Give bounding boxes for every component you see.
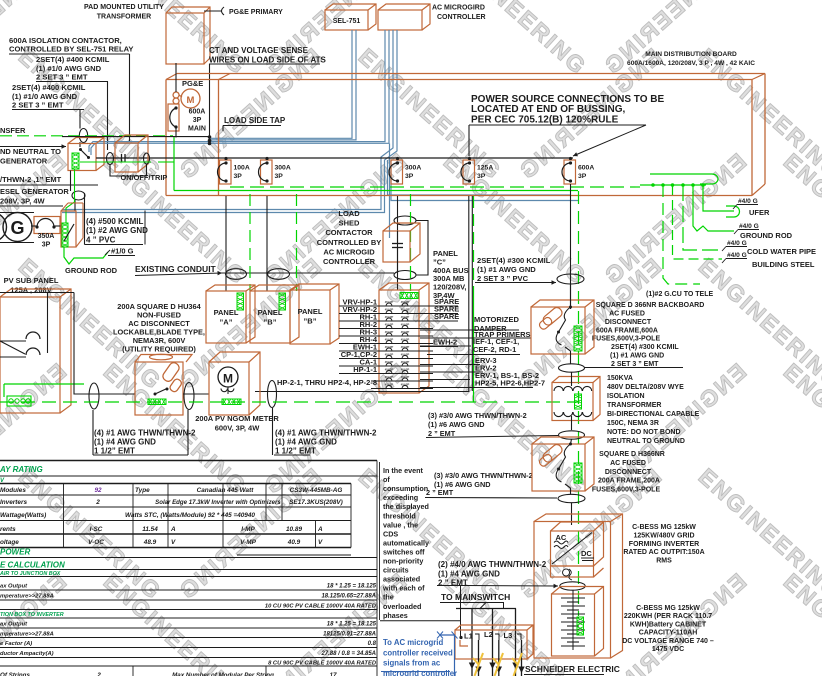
svg-text:BUILDING STEEL: BUILDING STEEL	[752, 260, 815, 269]
svg-text:600A: 600A	[578, 165, 594, 172]
svg-text:2SET(4) #400 KCMIL: 2SET(4) #400 KCMIL	[12, 83, 86, 92]
svg-text:SEL-751: SEL-751	[333, 18, 361, 25]
svg-text:CONTROLLED BY: CONTROLLED BY	[317, 238, 382, 247]
svg-text:1 1/2” EMT: 1 1/2” EMT	[275, 447, 316, 456]
svg-text:2 ” EMT: 2 ” EMT	[438, 579, 468, 588]
svg-text:MAIN DISTRIBUTION BOARD: MAIN DISTRIBUTION BOARD	[645, 51, 737, 58]
svg-text:associated: associated	[383, 575, 420, 584]
svg-text:220KWH (PER RACK 110.7: 220KWH (PER RACK 110.7	[624, 613, 712, 620]
svg-text:#4/0 G: #4/0 G	[739, 223, 759, 230]
svg-text:mperature>>27.88A: mperature>>27.88A	[0, 632, 54, 638]
svg-text:NSFER: NSFER	[0, 126, 26, 135]
svg-text:(1) #4 AWG GND: (1) #4 AWG GND	[275, 438, 337, 447]
svg-text:SE17.3KUS(208V): SE17.3KUS(208V)	[289, 499, 343, 506]
svg-text:45A2P: 45A2P	[385, 360, 394, 364]
svg-text:#1/0 G: #1/0 G	[111, 247, 134, 256]
svg-text:PANEL: PANEL	[298, 307, 323, 316]
svg-text:e Factor (A): e Factor (A)	[0, 641, 32, 647]
svg-text:FUSES,600V,3-POLE: FUSES,600V,3-POLE	[592, 336, 661, 343]
svg-text:(3) #3/0 AWG THWN/THWN-2: (3) #3/0 AWG THWN/THWN-2	[428, 411, 527, 420]
svg-text:125A , 208V: 125A , 208V	[10, 286, 51, 295]
svg-text:1475 VDC: 1475 VDC	[652, 646, 684, 653]
svg-text:Watts STC, (Watts/Module) 92: Watts STC, (Watts/Module) 92 * 445 =4094…	[125, 512, 255, 519]
svg-text:SQUARE D H366NR: SQUARE D H366NR	[599, 451, 665, 458]
svg-text:C-BESS MG 125kW: C-BESS MG 125kW	[636, 605, 700, 612]
svg-text:AY RATING: AY RATING	[0, 465, 43, 474]
svg-text:#4/0 G: #4/0 G	[727, 252, 747, 259]
svg-text:MAIN: MAIN	[188, 125, 206, 132]
svg-text:125A: 125A	[477, 165, 493, 172]
svg-text:0.8: 0.8	[368, 641, 377, 647]
svg-text:TRANSFORMER: TRANSFORMER	[97, 14, 151, 21]
svg-text:FORMING INVERTER: FORMING INVERTER	[629, 541, 699, 548]
svg-text:Wattage(Watts): Wattage(Watts)	[0, 512, 46, 519]
svg-text:(3) #3/0 AWG THWN/THWN-2: (3) #3/0 AWG THWN/THWN-2	[434, 471, 533, 480]
svg-text:45A2P: 45A2P	[401, 345, 410, 349]
svg-text:2 SET 3 ” EMT: 2 SET 3 ” EMT	[12, 101, 64, 110]
svg-text:45A2P: 45A2P	[401, 322, 410, 326]
svg-text:45A2P: 45A2P	[385, 352, 394, 356]
svg-text:CDS: CDS	[383, 529, 398, 538]
svg-text:300A: 300A	[405, 165, 421, 172]
svg-text:45A2P: 45A2P	[401, 300, 410, 304]
svg-text:TRANSFORMER: TRANSFORMER	[607, 402, 661, 409]
svg-text:2: 2	[96, 672, 101, 676]
svg-text:(UTILITY REQUIRED): (UTILITY REQUIRED)	[122, 345, 196, 354]
svg-text:27.88 / 0.8 = 34.85A: 27.88 / 0.8 = 34.85A	[320, 651, 376, 657]
svg-text:A: A	[170, 526, 176, 533]
svg-text:45A2P: 45A2P	[401, 382, 410, 386]
svg-text:value , the: value , the	[383, 520, 418, 529]
svg-text:ND NEUTRAL TO: ND NEUTRAL TO	[0, 147, 61, 156]
svg-text:GENERATOR: GENERATOR	[0, 157, 48, 166]
svg-text:45A2P: 45A2P	[401, 330, 410, 334]
svg-text:PG&E PRIMARY: PG&E PRIMARY	[229, 9, 283, 16]
svg-text:Modules: Modules	[0, 487, 26, 494]
svg-text:the: the	[383, 593, 394, 602]
svg-text:PG&E: PG&E	[182, 79, 203, 88]
svg-text:the displayed: the displayed	[383, 502, 429, 511]
svg-text:3P: 3P	[405, 173, 414, 180]
svg-text:SPARE: SPARE	[434, 312, 459, 321]
svg-text:CONTROLLER: CONTROLLER	[323, 257, 376, 266]
svg-text:L2: L2	[484, 630, 493, 639]
svg-text:DISCONNECT: DISCONNECT	[605, 469, 652, 476]
svg-text:of: of	[383, 475, 390, 484]
svg-text:18.125/0.65=27.88A: 18.125/0.65=27.88A	[321, 594, 376, 600]
svg-text:DC: DC	[581, 549, 592, 558]
svg-text:8 CU 90C PV CABLE 1000V 40A RA: 8 CU 90C PV CABLE 1000V 40A RATED	[268, 661, 377, 667]
svg-text:45A2P: 45A2P	[401, 307, 410, 311]
svg-text:2 ” EMT: 2 ” EMT	[426, 488, 454, 497]
svg-text:45A2P: 45A2P	[385, 345, 394, 349]
svg-text:circuits: circuits	[383, 566, 409, 575]
svg-text:AC FUSED: AC FUSED	[610, 460, 646, 467]
svg-text:2 SET 3 ” PVC: 2 SET 3 ” PVC	[477, 274, 529, 283]
svg-text:18 * 1.25 = 18.125: 18 * 1.25 = 18.125	[327, 622, 377, 628]
svg-text:M: M	[187, 95, 195, 106]
svg-text:ductor Ampacity(A): ductor Ampacity(A)	[0, 651, 54, 657]
svg-text:150C, NEMA 3R: 150C, NEMA 3R	[607, 420, 659, 427]
svg-text:CONTROLLER: CONTROLLER	[437, 14, 486, 21]
svg-text:V: V	[171, 539, 176, 546]
svg-text:3P: 3P	[234, 173, 243, 180]
svg-text:480V DELTA/208V WYE: 480V DELTA/208V WYE	[607, 384, 684, 391]
svg-text:45A2P: 45A2P	[401, 315, 410, 319]
svg-text:LOAD SIDE TAP: LOAD SIDE TAP	[224, 116, 286, 125]
svg-text:V-OC: V-OC	[88, 539, 104, 546]
svg-text:ax Output: ax Output	[0, 584, 28, 590]
svg-text:SCHNEIDER ELECTRIC: SCHNEIDER ELECTRIC	[525, 664, 620, 674]
svg-text:TO MAINSWITCH: TO MAINSWITCH	[441, 592, 510, 602]
svg-text:non-priority: non-priority	[383, 557, 423, 566]
svg-text:/THWN-2 ,1” EMT: /THWN-2 ,1” EMT	[0, 175, 62, 184]
svg-text:3P: 3P	[42, 242, 51, 249]
svg-text:3P: 3P	[193, 117, 202, 124]
svg-text:COLD WATER PIPE: COLD WATER PIPE	[747, 247, 816, 256]
svg-text:3P: 3P	[477, 173, 486, 180]
svg-text:(4) #1 AWG THWN/THWN-2: (4) #1 AWG THWN/THWN-2	[94, 429, 196, 438]
svg-text:SHED: SHED	[339, 219, 360, 228]
svg-text:switches off: switches off	[383, 547, 425, 556]
svg-text:(1) #1/0 AWG GND: (1) #1/0 AWG GND	[36, 64, 102, 73]
svg-text:ax Output: ax Output	[0, 622, 28, 628]
svg-text:45A2P: 45A2P	[401, 367, 410, 371]
svg-text:CAPACITY-110AH: CAPACITY-110AH	[639, 630, 698, 637]
svg-text:45A2P: 45A2P	[385, 382, 394, 386]
svg-text:BI-DIRECTIONAL CAPABLE: BI-DIRECTIONAL CAPABLE	[607, 411, 700, 418]
svg-text:”B”: ”B”	[304, 317, 317, 326]
svg-text:V: V	[318, 539, 323, 546]
svg-text:overloaded: overloaded	[383, 602, 421, 611]
svg-text:(2) #4/0 AWG THWN/THWN-2: (2) #4/0 AWG THWN/THWN-2	[438, 560, 547, 569]
svg-text:HP-2-1, THRU HP2-4, HP-2-8: HP-2-1, THRU HP2-4, HP-2-8	[277, 378, 377, 387]
svg-text:(1) #1 AWG GND: (1) #1 AWG GND	[477, 265, 536, 274]
svg-text:(1) #1 AWG GND: (1) #1 AWG GND	[610, 353, 664, 360]
svg-text:10 CU 90C PV CABLE 1000V 40A R: 10 CU 90C PV CABLE 1000V 40A RATED	[265, 604, 377, 610]
svg-text:45A2P: 45A2P	[385, 300, 394, 304]
svg-text:(1) #4 AWG GND: (1) #4 AWG GND	[438, 569, 500, 578]
svg-text:#4/0 G: #4/0 G	[727, 240, 747, 247]
svg-text:AIR TO JUNCTION BOX: AIR TO JUNCTION BOX	[0, 571, 61, 577]
svg-text:350A: 350A	[38, 233, 55, 240]
svg-text:CT AND VOLTAGE SENSE: CT AND VOLTAGE SENSE	[209, 46, 309, 55]
svg-text:ON/OFF/TRIP: ON/OFF/TRIP	[121, 173, 168, 182]
svg-text:mperature>>27.88A: mperature>>27.88A	[0, 594, 54, 600]
svg-text:45A2P: 45A2P	[401, 360, 410, 364]
svg-text:45A2P: 45A2P	[401, 337, 410, 341]
svg-text:(1) #4 AWG GND: (1) #4 AWG GND	[94, 438, 156, 447]
svg-text:4 ” PVC: 4 ” PVC	[86, 235, 116, 244]
svg-text:11.54: 11.54	[142, 526, 158, 533]
svg-text:3P: 3P	[275, 173, 284, 180]
svg-text:In the event: In the event	[383, 466, 424, 475]
svg-text:LOAD: LOAD	[338, 209, 360, 218]
svg-text:RATED AC OUTPIT:150A: RATED AC OUTPIT:150A	[623, 549, 704, 556]
svg-text:18125/0.91=27.88A: 18125/0.91=27.88A	[323, 632, 376, 638]
svg-text:45A2P: 45A2P	[385, 315, 394, 319]
svg-text:45A2P: 45A2P	[385, 307, 394, 311]
svg-text:KWH)Battery CABINET: KWH)Battery CABINET	[630, 621, 707, 628]
svg-text:(4) #1 AWG THWN/THWN-2: (4) #1 AWG THWN/THWN-2	[275, 429, 377, 438]
svg-text:300A: 300A	[275, 165, 291, 172]
svg-text:”B”: ”B”	[264, 318, 277, 327]
svg-text:(1) #2 AWG GND: (1) #2 AWG GND	[86, 226, 148, 235]
svg-text:I-SC: I-SC	[90, 526, 103, 533]
svg-text:600V, 3P, 4W: 600V, 3P, 4W	[215, 424, 261, 433]
svg-text:automatically: automatically	[383, 538, 429, 547]
svg-text:AC FUSED: AC FUSED	[609, 311, 645, 318]
svg-text:45A2P: 45A2P	[385, 375, 394, 379]
svg-text:rents: rents	[0, 526, 16, 533]
svg-text:CONTACTOR: CONTACTOR	[325, 228, 373, 237]
svg-text:L1: L1	[464, 632, 473, 641]
svg-text:phases: phases	[383, 611, 408, 620]
svg-text:G: G	[10, 218, 24, 238]
svg-text:E CALCULATION: E CALCULATION	[0, 561, 65, 570]
svg-text:10.89: 10.89	[286, 526, 302, 533]
svg-text:oltage: oltage	[0, 539, 19, 546]
svg-text:2SET(4) #300 KCMIL: 2SET(4) #300 KCMIL	[611, 344, 679, 351]
svg-text:Canadian 445 Watt: Canadian 445 Watt	[197, 487, 255, 494]
svg-text:M: M	[223, 372, 233, 386]
svg-text:To AC microgrid: To AC microgrid	[383, 638, 443, 647]
svg-text:150KVA: 150KVA	[607, 375, 633, 382]
svg-text:#4/0 G: #4/0 G	[738, 198, 758, 205]
svg-text:Of Strings: Of Strings	[0, 672, 30, 676]
svg-text:Type: Type	[135, 487, 150, 494]
svg-text:SQUARE D 366NR BACKBOARD: SQUARE D 366NR BACKBOARD	[596, 302, 705, 309]
svg-text:92: 92	[94, 487, 102, 494]
svg-text:600A/1600A, 120/208V, 3 P , 4W: 600A/1600A, 120/208V, 3 P , 4W , 42 KAIC	[627, 60, 755, 67]
svg-text:1 1/2” EMT: 1 1/2” EMT	[94, 447, 135, 456]
svg-text:A: A	[317, 526, 323, 533]
svg-text:EXISTING CONDUIT: EXISTING CONDUIT	[135, 264, 217, 274]
svg-text:threshold: threshold	[383, 511, 416, 520]
svg-text:2SET(4) #400 KCMIL: 2SET(4) #400 KCMIL	[36, 55, 110, 64]
svg-text:Solar Edge 17.3kW Inverter wit: Solar Edge 17.3kW Inverter with Optimize…	[155, 499, 281, 506]
svg-text:WIRES ON LOAD SIDE OF ATS: WIRES ON LOAD SIDE OF ATS	[209, 56, 327, 65]
svg-text:GROUND ROD: GROUND ROD	[740, 231, 793, 240]
svg-text:ESEL GENERATOR: ESEL GENERATOR	[0, 187, 69, 196]
svg-text:200A FRAME,200A: 200A FRAME,200A	[598, 478, 660, 485]
svg-text:PV SUB PANEL: PV SUB PANEL	[4, 276, 59, 285]
svg-text:2 SET 3 ” EMT: 2 SET 3 ” EMT	[36, 73, 88, 82]
svg-text:microgrid controller: microgrid controller	[383, 669, 457, 676]
svg-text:45A2P: 45A2P	[401, 352, 410, 356]
svg-text:40.9: 40.9	[287, 539, 301, 546]
svg-text:Inverters: Inverters	[0, 499, 27, 506]
svg-text:AC MICROGIRD: AC MICROGIRD	[432, 5, 485, 12]
svg-text:HP-1-1: HP-1-1	[353, 365, 377, 374]
svg-text:PANEL: PANEL	[214, 308, 239, 317]
svg-text:2SET(4) #300 KCMIL: 2SET(4) #300 KCMIL	[477, 256, 551, 265]
svg-text:RMS: RMS	[656, 558, 672, 565]
svg-text:MOTORIZED: MOTORIZED	[474, 315, 519, 324]
svg-text:POWER: POWER	[0, 548, 30, 557]
svg-text:HP2-5, HP2-6,HP2-7: HP2-5, HP2-6,HP2-7	[475, 379, 545, 388]
svg-text:FUSES,600V,3-POLE: FUSES,600V,3-POLE	[592, 487, 661, 494]
svg-text:exceeding: exceeding	[383, 493, 418, 502]
svg-text:L3: L3	[504, 631, 513, 640]
svg-text:45A2P: 45A2P	[385, 322, 394, 326]
svg-text:TION BOX TO INVERTER: TION BOX TO INVERTER	[0, 612, 64, 618]
svg-text:UFER: UFER	[749, 208, 770, 217]
svg-text:AC MICROGID: AC MICROGID	[323, 247, 375, 256]
svg-text:PER CEC 705.12(B) 120%RULE: PER CEC 705.12(B) 120%RULE	[471, 114, 619, 125]
svg-text:(1)#2 G.CU TO TELE: (1)#2 G.CU TO TELE	[646, 291, 713, 298]
svg-text:ISOLATION: ISOLATION	[607, 393, 645, 400]
svg-text:17: 17	[329, 672, 337, 676]
svg-text:PAD MOUNTED UTILITY: PAD MOUNTED UTILITY	[84, 4, 164, 11]
svg-text:18 * 1.25 = 18.125: 18 * 1.25 = 18.125	[327, 584, 377, 590]
svg-text:consumption: consumption	[383, 484, 428, 493]
svg-text:(1) #6 AWG GND: (1) #6 AWG GND	[428, 420, 485, 429]
svg-text:C-BESS MG 125kW: C-BESS MG 125kW	[632, 524, 696, 531]
svg-text:600A FRAME,600A: 600A FRAME,600A	[596, 328, 658, 335]
svg-text:I-MP: I-MP	[241, 526, 255, 533]
svg-text:45A2P: 45A2P	[385, 367, 394, 371]
svg-text:CONTROLLED BY SEL-751 RELAY: CONTROLLED BY SEL-751 RELAY	[9, 45, 133, 54]
svg-text:2: 2	[95, 499, 100, 506]
svg-text:600A: 600A	[189, 109, 206, 116]
svg-text:208V, 3P, 4W: 208V, 3P, 4W	[0, 197, 46, 206]
svg-text:NOTE: DO NOT BOND: NOTE: DO NOT BOND	[607, 429, 681, 436]
svg-text:EWH-2: EWH-2	[433, 338, 457, 347]
svg-text:”A”: ”A”	[220, 318, 233, 327]
svg-text:45A2P: 45A2P	[385, 330, 394, 334]
svg-text:CEF-2, RD-1: CEF-2, RD-1	[473, 345, 516, 354]
svg-text:CS3W-445MB-AG: CS3W-445MB-AG	[290, 487, 343, 494]
svg-text:(1) #1/0 AWG GND: (1) #1/0 AWG GND	[12, 92, 78, 101]
svg-text:V-MP: V-MP	[240, 539, 256, 546]
svg-text:125KW/480V GRID: 125KW/480V GRID	[633, 532, 694, 539]
svg-text:signals from ac: signals from ac	[383, 659, 441, 668]
svg-text:Max Number of Modular Per Stri: Max Number of Modular Per String	[172, 672, 274, 676]
svg-text:45A2P: 45A2P	[385, 337, 394, 341]
svg-text:3P: 3P	[578, 173, 587, 180]
svg-text:controller received: controller received	[383, 648, 453, 657]
svg-text:GROUND ROD: GROUND ROD	[65, 266, 118, 275]
svg-text:DISCONNECT: DISCONNECT	[605, 319, 652, 326]
svg-text:with each of: with each of	[382, 584, 425, 593]
svg-text:DC VOLTAGE RANGE 740 –: DC VOLTAGE RANGE 740 –	[622, 638, 714, 645]
svg-text:48.9: 48.9	[143, 539, 157, 546]
svg-text:NEUTRAL TO GROUND: NEUTRAL TO GROUND	[607, 438, 685, 445]
svg-text:45A2P: 45A2P	[401, 375, 410, 379]
svg-text:100A: 100A	[234, 165, 250, 172]
svg-text:(4) #500 KCMIL: (4) #500 KCMIL	[86, 217, 143, 226]
